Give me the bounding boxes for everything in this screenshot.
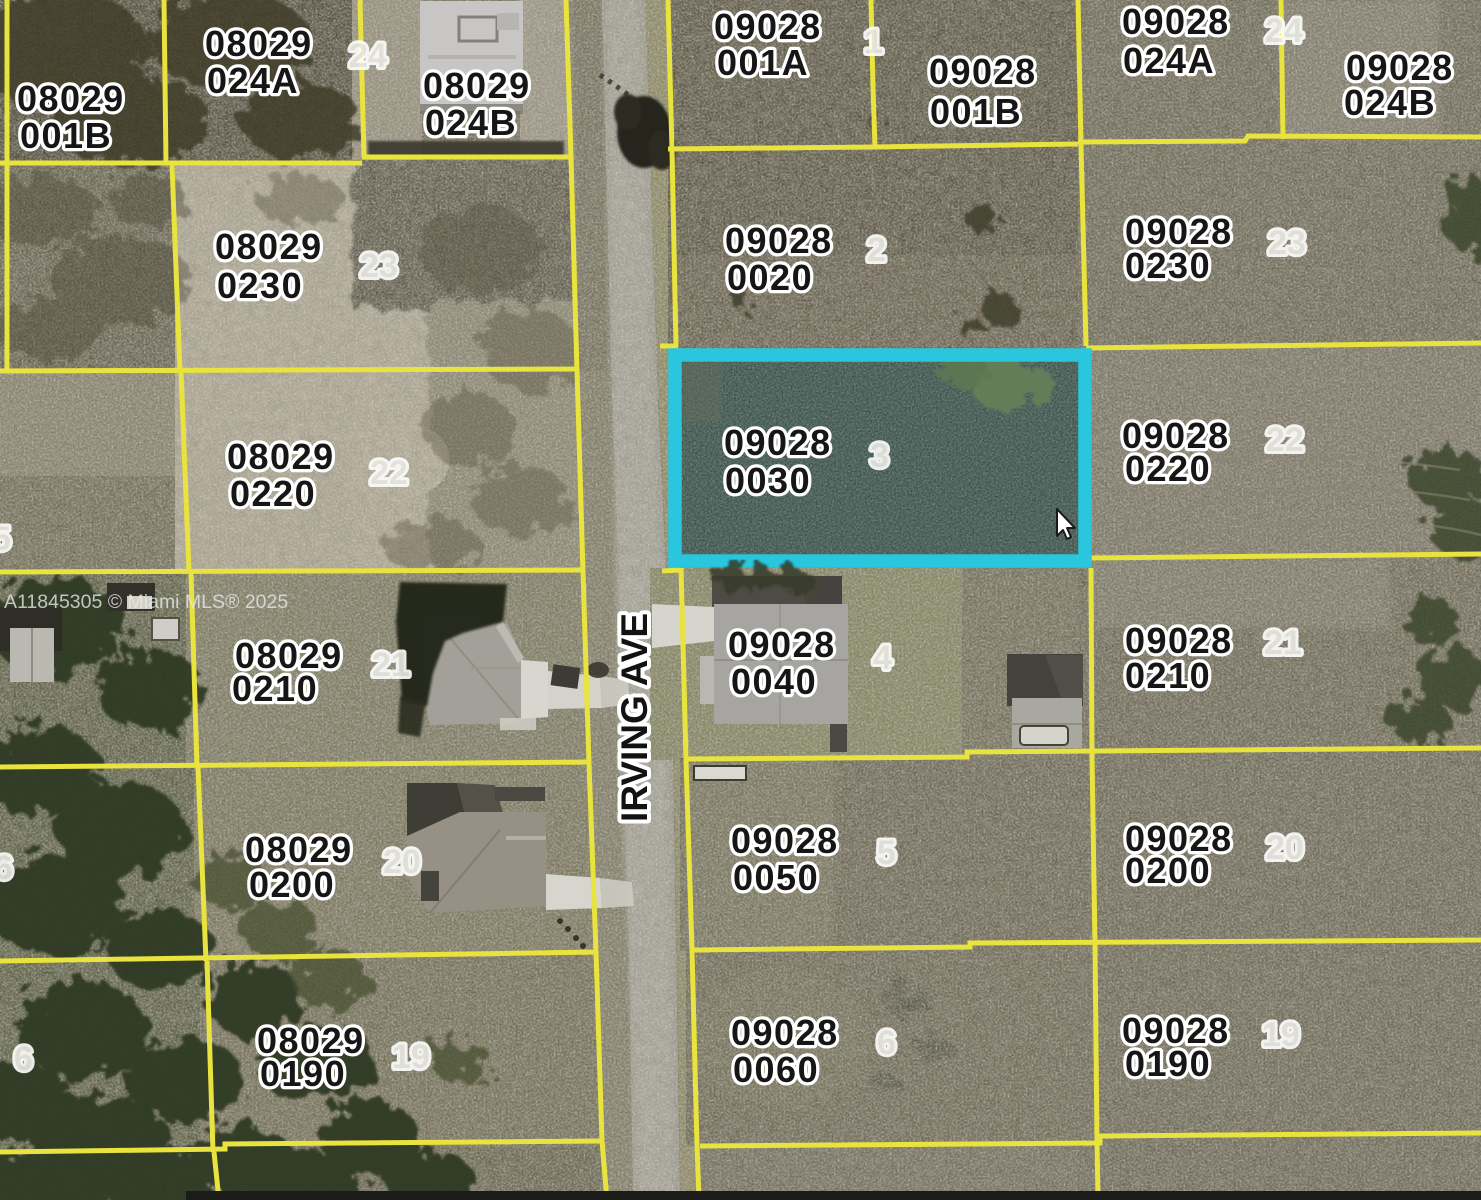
svg-text:09028: 09028	[929, 51, 1037, 92]
svg-text:09028: 09028	[1122, 1, 1230, 42]
svg-text:6: 6	[877, 1024, 896, 1062]
svg-text:6: 6	[14, 1040, 33, 1078]
svg-text:0230: 0230	[217, 265, 303, 306]
svg-text:23: 23	[1268, 224, 1306, 262]
svg-text:0220: 0220	[230, 473, 316, 514]
svg-text:24: 24	[349, 37, 387, 75]
svg-text:08029: 08029	[17, 78, 125, 119]
svg-text:09028: 09028	[728, 624, 836, 665]
svg-text:09028: 09028	[731, 820, 839, 861]
svg-text:09028: 09028	[731, 1012, 839, 1053]
svg-text:08029: 08029	[215, 226, 323, 267]
svg-text:024B: 024B	[425, 102, 517, 143]
svg-text:0040: 0040	[731, 661, 817, 702]
svg-text:001B: 001B	[20, 115, 112, 156]
svg-text:0020: 0020	[727, 257, 813, 298]
svg-text:22: 22	[1266, 421, 1304, 459]
svg-text:0230: 0230	[1125, 245, 1211, 286]
svg-text:5: 5	[0, 520, 11, 558]
svg-text:21: 21	[372, 646, 410, 684]
svg-text:024A: 024A	[1123, 40, 1215, 81]
svg-text:09028: 09028	[724, 422, 832, 463]
svg-text:24: 24	[1265, 12, 1303, 50]
svg-text:08029: 08029	[423, 65, 531, 106]
svg-text:08029: 08029	[205, 23, 313, 64]
svg-text:0200: 0200	[249, 864, 335, 905]
svg-text:21: 21	[1264, 624, 1302, 662]
svg-text:0210: 0210	[1125, 655, 1211, 696]
svg-text:20: 20	[1266, 829, 1304, 867]
svg-text:2: 2	[867, 231, 886, 269]
svg-text:0050: 0050	[733, 857, 819, 898]
svg-text:0190: 0190	[260, 1053, 346, 1094]
svg-text:0200: 0200	[1125, 850, 1211, 891]
svg-text:5: 5	[877, 834, 896, 872]
svg-text:4: 4	[873, 639, 892, 677]
svg-text:09028: 09028	[714, 6, 822, 47]
svg-text:23: 23	[360, 247, 398, 285]
svg-text:1: 1	[864, 23, 883, 61]
svg-text:0030: 0030	[725, 460, 811, 501]
svg-text:3: 3	[870, 437, 889, 475]
svg-text:A11845305 © Miami MLS® 2025: A11845305 © Miami MLS® 2025	[4, 591, 288, 613]
svg-text:6: 6	[0, 849, 13, 887]
svg-text:001A: 001A	[717, 42, 809, 83]
svg-text:0060: 0060	[733, 1049, 819, 1090]
svg-text:024B: 024B	[1344, 82, 1436, 123]
svg-text:19: 19	[392, 1038, 430, 1076]
svg-text:20: 20	[383, 843, 421, 881]
svg-text:09028: 09028	[725, 220, 833, 261]
svg-text:22: 22	[370, 454, 408, 492]
svg-text:IRVING AVE: IRVING AVE	[614, 613, 655, 822]
svg-text:08029: 08029	[227, 436, 335, 477]
svg-text:19: 19	[1262, 1016, 1300, 1054]
svg-text:024A: 024A	[207, 60, 299, 101]
svg-text:001B: 001B	[930, 91, 1022, 132]
svg-text:0210: 0210	[232, 668, 318, 709]
svg-text:0220: 0220	[1125, 448, 1211, 489]
svg-text:0190: 0190	[1125, 1043, 1211, 1084]
